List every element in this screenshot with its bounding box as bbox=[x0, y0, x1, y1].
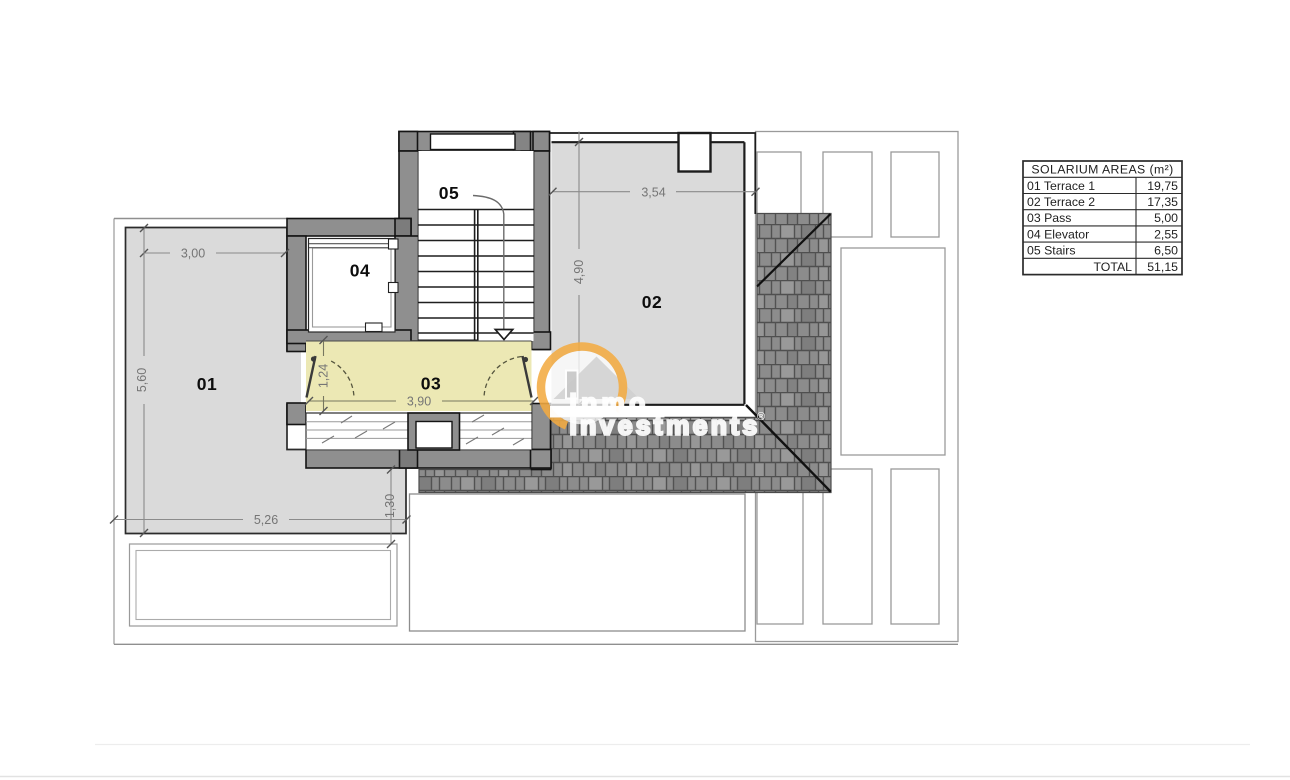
svg-text:1,24: 1,24 bbox=[317, 364, 331, 388]
svg-text:4,90: 4,90 bbox=[572, 260, 586, 284]
svg-text:03 Pass: 03 Pass bbox=[1027, 211, 1071, 225]
svg-text:17,35: 17,35 bbox=[1147, 195, 1178, 209]
svg-text:5,00: 5,00 bbox=[1154, 211, 1178, 225]
svg-text:3,90: 3,90 bbox=[407, 395, 431, 409]
svg-text:02: 02 bbox=[642, 292, 662, 312]
svg-text:1,30: 1,30 bbox=[383, 494, 397, 518]
svg-text:2,55: 2,55 bbox=[1154, 227, 1178, 241]
svg-text:®: ® bbox=[757, 411, 765, 423]
svg-text:Investments: Investments bbox=[570, 411, 761, 441]
svg-text:SOLARIUM AREAS (m²): SOLARIUM AREAS (m²) bbox=[1031, 163, 1173, 177]
svg-text:3,00: 3,00 bbox=[181, 247, 205, 261]
svg-text:01 Terrace 1: 01 Terrace 1 bbox=[1027, 179, 1095, 193]
svg-text:02 Terrace 2: 02 Terrace 2 bbox=[1027, 195, 1095, 209]
svg-text:03: 03 bbox=[421, 374, 441, 394]
svg-text:TOTAL: TOTAL bbox=[1094, 260, 1133, 274]
svg-text:01: 01 bbox=[197, 374, 217, 394]
svg-text:04 Elevator: 04 Elevator bbox=[1027, 227, 1089, 241]
svg-text:5,26: 5,26 bbox=[254, 513, 278, 527]
svg-text:05: 05 bbox=[439, 183, 459, 203]
svg-text:3,54: 3,54 bbox=[641, 186, 665, 200]
svg-text:19,75: 19,75 bbox=[1147, 179, 1178, 193]
svg-text:51,15: 51,15 bbox=[1147, 260, 1178, 274]
svg-text:5,60: 5,60 bbox=[135, 368, 149, 392]
svg-text:05 Stairs: 05 Stairs bbox=[1027, 244, 1076, 258]
svg-text:6,50: 6,50 bbox=[1154, 244, 1178, 258]
svg-text:04: 04 bbox=[350, 261, 370, 281]
